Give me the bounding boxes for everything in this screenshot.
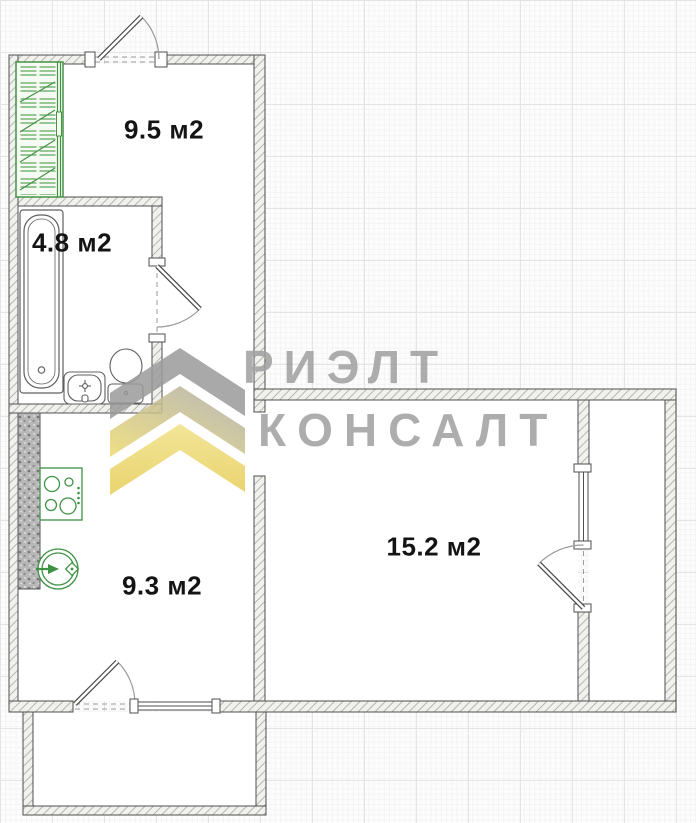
room-label-living-room: 15.2 м2	[386, 532, 481, 563]
vent-shaft	[18, 413, 40, 589]
room-label-bathroom: 4.8 м2	[32, 228, 112, 259]
room-label-kitchen: 9.3 м2	[122, 571, 202, 602]
stove-icon	[40, 468, 82, 520]
entrance-door[interactable]	[85, 17, 167, 67]
room-label-hallway: 9.5 м2	[124, 115, 204, 146]
wardrobe-icon	[16, 62, 63, 197]
bathroom-sink-icon	[64, 372, 105, 404]
floor-plan-canvas: 9.5 м2 4.8 м2 9.3 м2 15.2 м2 РИЭЛТ КОНСА…	[0, 0, 696, 823]
watermark-text-line1: РИЭЛТ	[243, 344, 448, 390]
kitchen-window	[130, 699, 220, 713]
watermark-text-line2: КОНСАЛТ	[258, 407, 558, 453]
